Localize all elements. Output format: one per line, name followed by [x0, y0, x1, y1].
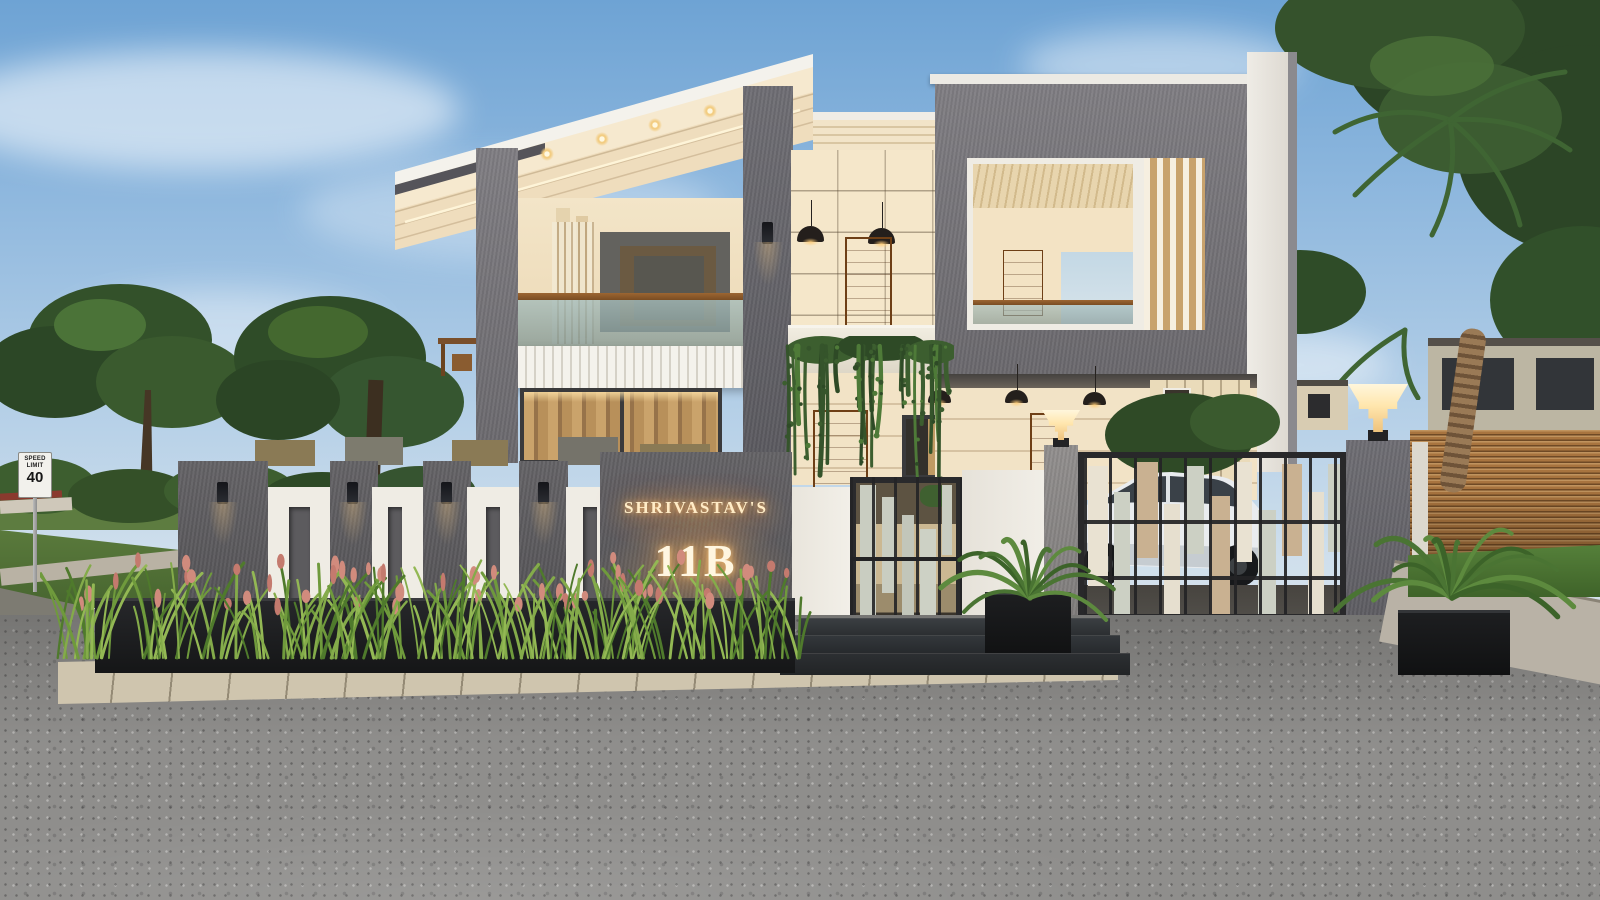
neighbor-window — [1308, 394, 1330, 418]
pergola-swing — [452, 354, 472, 371]
pillar-left — [476, 148, 518, 463]
interior-glow — [524, 392, 718, 402]
fence-sconce — [347, 482, 358, 504]
architectural-render-scene: SPEED LIMIT 40 — [0, 0, 1600, 900]
neighbor-roofline — [1290, 380, 1348, 386]
wall-sconce-pillar — [762, 222, 773, 244]
fin-edge — [1288, 52, 1297, 472]
pergola-post — [441, 344, 445, 376]
neighbor-house-small — [1290, 386, 1348, 430]
neighbor-roofline — [1428, 338, 1600, 346]
sign-post — [33, 492, 37, 592]
glass-railing-right — [973, 305, 1133, 324]
fence-sconce — [441, 482, 452, 504]
nameplate-owner: SHRIVASTAV'S — [600, 498, 792, 518]
balcony-glass-railing — [516, 300, 744, 348]
parapet-cap — [813, 112, 937, 120]
palm-plant-right — [1330, 500, 1600, 690]
ornamental-grass-bed — [40, 520, 820, 670]
sign-board: SPEED LIMIT 40 — [18, 452, 52, 498]
ivy-plant — [782, 336, 954, 488]
sign-line1: SPEED — [19, 456, 51, 463]
balcony-slat-band — [500, 346, 760, 388]
fence-sconce — [217, 482, 228, 504]
upper-center-door — [845, 237, 892, 327]
fence-sconce — [538, 482, 549, 504]
box-top-trim — [930, 74, 1264, 84]
balcony-wood-ceiling — [973, 164, 1133, 208]
door-mullion — [620, 392, 624, 460]
right-balcony-opening — [967, 158, 1139, 330]
sign-value: 40 — [19, 470, 51, 485]
wood-handrail — [514, 293, 746, 300]
louver-panel — [1139, 158, 1205, 330]
palm-plant-steps — [900, 510, 1200, 670]
